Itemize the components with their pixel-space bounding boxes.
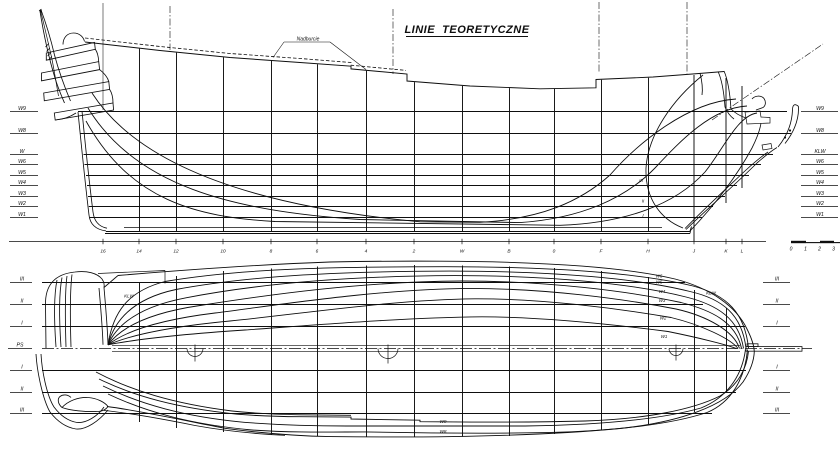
svg-text:W3: W3 — [816, 191, 824, 197]
svg-text:W2: W2 — [660, 316, 667, 321]
svg-text:J: J — [692, 249, 696, 255]
svg-text:W5: W5 — [656, 280, 663, 285]
svg-text:W3: W3 — [18, 191, 26, 197]
svg-text:KLW: KLW — [124, 294, 134, 299]
svg-text:2: 2 — [817, 247, 821, 253]
svg-text:W1: W1 — [661, 334, 668, 339]
svg-text:W4: W4 — [816, 180, 824, 186]
svg-text:W: W — [460, 249, 465, 255]
svg-text:Nadburcie: Nadburcie — [297, 37, 320, 43]
svg-text:KLW: KLW — [814, 149, 826, 155]
svg-text:12: 12 — [173, 249, 179, 255]
svg-text:8: 8 — [270, 249, 273, 255]
svg-text:W5: W5 — [816, 170, 824, 176]
svg-text:W8: W8 — [440, 429, 447, 434]
svg-text:0: 0 — [790, 247, 793, 253]
svg-text:14: 14 — [136, 249, 142, 255]
svg-text:W1: W1 — [816, 212, 824, 218]
svg-text:6: 6 — [316, 249, 319, 255]
svg-text:1: 1 — [804, 247, 807, 253]
svg-text:W9: W9 — [18, 106, 26, 112]
svg-text:W9: W9 — [440, 419, 447, 424]
svg-text:LINIE TEORETYCZNE: LINIE TEORETYCZNE — [404, 24, 529, 36]
svg-text:III: III — [20, 408, 25, 414]
svg-text:PS: PS — [17, 343, 24, 349]
svg-text:0: 0 — [553, 249, 556, 255]
svg-text:W8: W8 — [816, 128, 824, 134]
svg-text:KLW: KLW — [706, 291, 716, 296]
svg-text:W4: W4 — [659, 289, 666, 294]
svg-text:10: 10 — [220, 249, 226, 255]
svg-text:W3: W3 — [659, 298, 666, 303]
svg-text:16: 16 — [100, 249, 106, 255]
svg-text:W1: W1 — [18, 212, 26, 218]
svg-text:W2: W2 — [816, 201, 824, 207]
svg-text:L: L — [741, 249, 744, 255]
svg-text:3: 3 — [832, 247, 835, 253]
svg-text:W4: W4 — [18, 180, 26, 186]
svg-text:2: 2 — [412, 249, 416, 255]
svg-text:W6: W6 — [18, 159, 26, 165]
svg-text:4: 4 — [365, 249, 368, 255]
svg-text:W5: W5 — [18, 170, 26, 176]
svg-text:W2: W2 — [18, 201, 26, 207]
svg-text:W9: W9 — [816, 106, 824, 112]
svg-text:W6: W6 — [656, 274, 663, 279]
svg-text:H: H — [646, 249, 650, 255]
svg-text:W8: W8 — [18, 128, 26, 134]
svg-text:III: III — [20, 277, 25, 283]
svg-text:III: III — [775, 408, 780, 414]
svg-text:W6: W6 — [816, 159, 824, 165]
svg-text:III: III — [775, 277, 780, 283]
